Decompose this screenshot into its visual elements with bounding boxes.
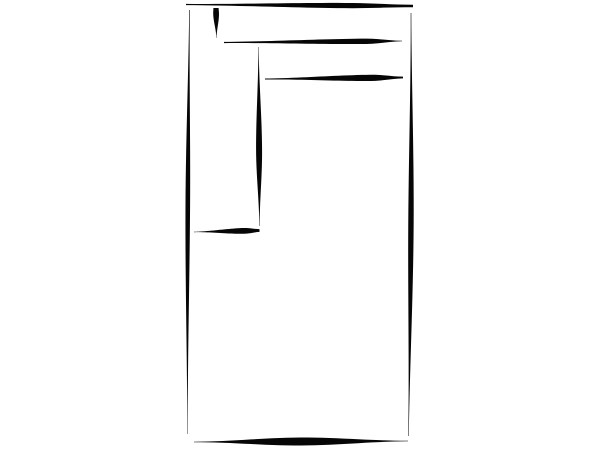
top-left-tick-stroke (213, 8, 219, 38)
upper-divider-stroke (224, 39, 402, 44)
left-edge-stroke (185, 10, 190, 434)
hand-drawn-sketch (0, 0, 600, 450)
top-edge-stroke (186, 3, 413, 8)
bottom-edge-stroke (194, 438, 408, 446)
mid-divider-stroke (265, 75, 403, 81)
left-shelf-line-stroke (194, 228, 260, 234)
inner-vertical-stroke (256, 47, 262, 226)
right-edge-stroke (408, 13, 414, 436)
sketch-canvas (0, 0, 600, 450)
